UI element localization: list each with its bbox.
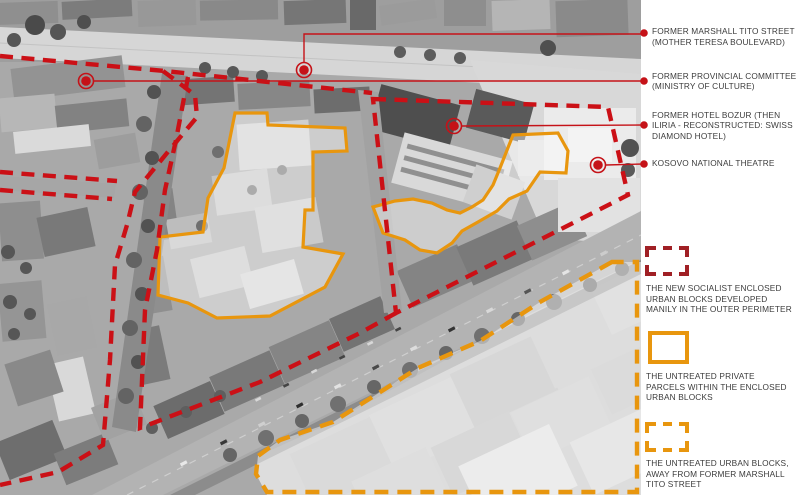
legend-label-private-parcels: THE UNTREATED PRIVATE PARCELS WITHIN THE… <box>646 371 798 403</box>
urban-analysis-figure: FORMER MARSHALL TITO STREET (MOTHER TERE… <box>0 0 800 495</box>
annotation-dot-2 <box>640 77 648 85</box>
annotation-label-provincial-committee: FORMER PROVINCIAL COMMITTEE (MINISTRY OF… <box>652 71 798 92</box>
legend-label-socialist-blocks: THE NEW SOCIALIST ENCLOSED URBAN BLOCKS … <box>646 283 798 315</box>
legend-label-untreated-blocks: THE UNTREATED URBAN BLOCKS, AWAY FROM FO… <box>646 458 798 490</box>
annotation-label-hotel-bozur: FORMER HOTEL BOZUR (THEN ILIRIA - RECONS… <box>652 110 798 142</box>
aerial-photo <box>0 0 677 495</box>
annotation-label-theatre: KOSOVO NATIONAL THEATRE <box>652 158 798 169</box>
annotation-dot-3 <box>640 121 648 129</box>
annotation-dot-4 <box>640 160 648 168</box>
annotation-label-tito-street: FORMER MARSHALL TITO STREET (MOTHER TERE… <box>652 26 798 47</box>
leader-line-hotel-bozur <box>462 125 644 126</box>
annotation-dot-1 <box>640 29 648 37</box>
leader-line-theatre <box>606 164 644 165</box>
